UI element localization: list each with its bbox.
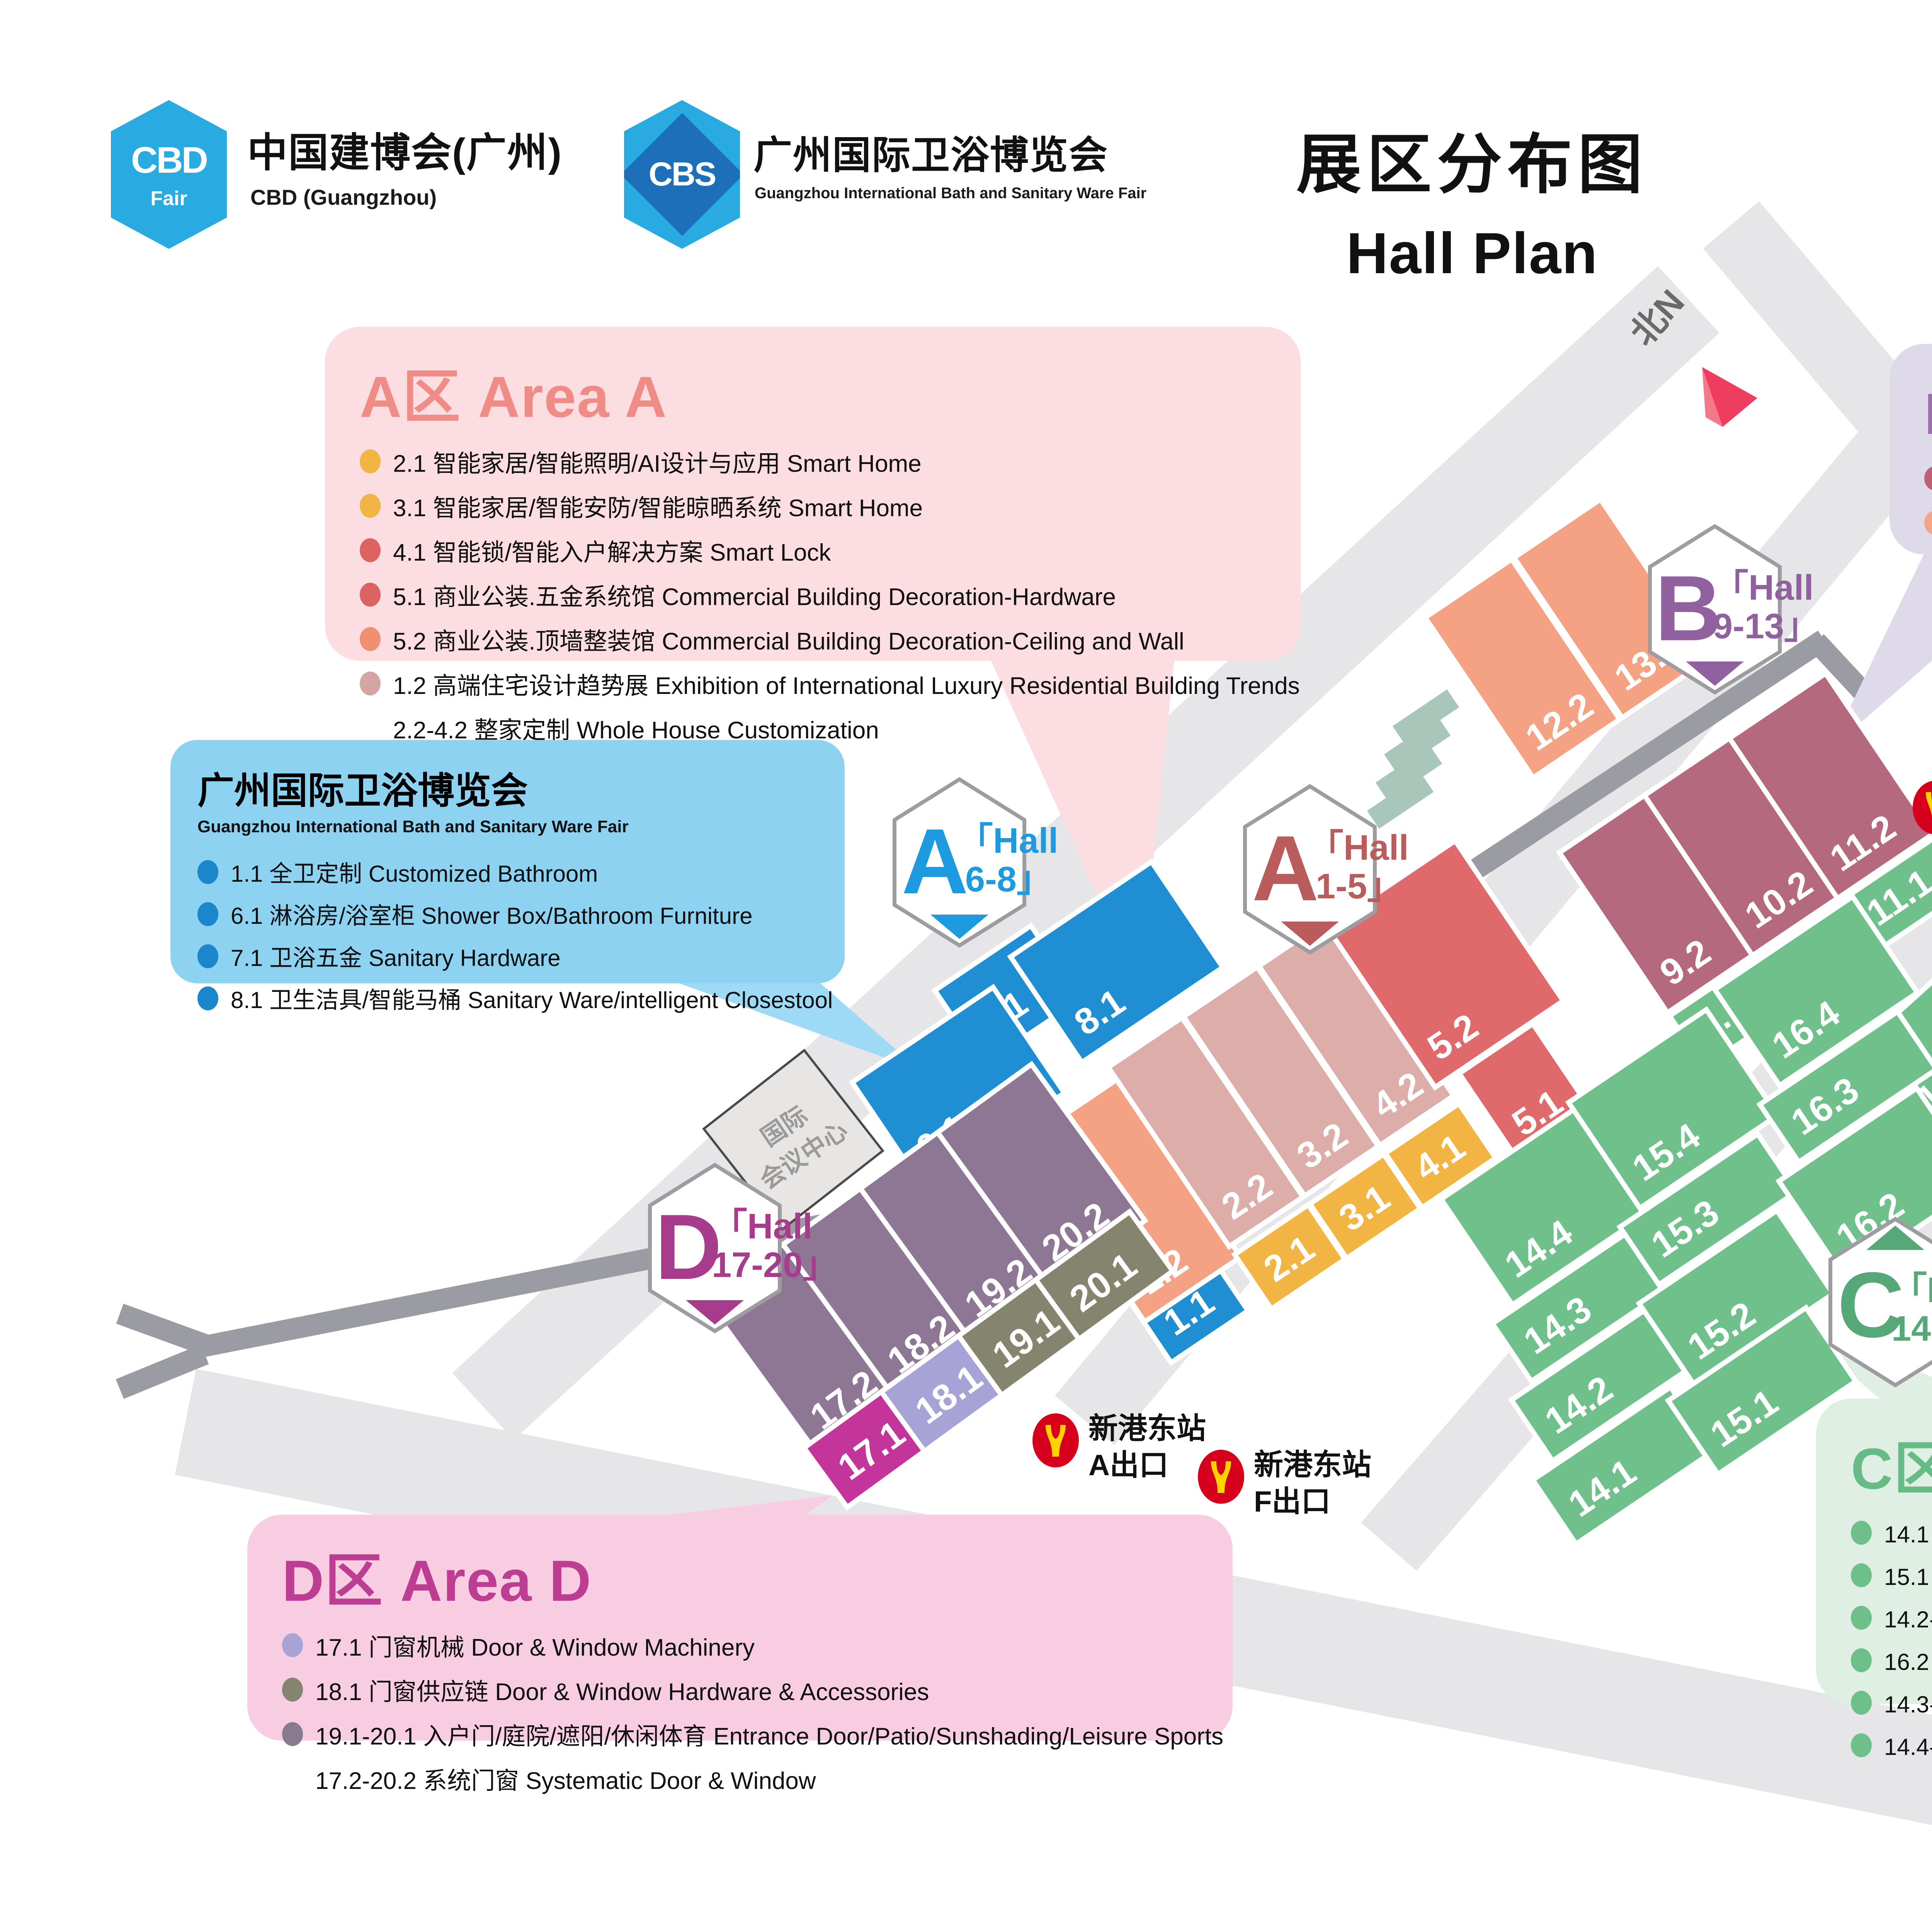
legend-item: 5.1 商业公装.五金系统馆 Commercial Building Decor…	[360, 577, 1266, 612]
legend-item: 3.1 智能家居/智能安防/智能晾晒系统 Smart Home	[360, 488, 1266, 523]
legend-dot	[1851, 1606, 1872, 1630]
area-d-title-cn: D区	[282, 1548, 383, 1613]
legend-item: 12.2-13.2 涂料软装馆 Coating & Furnishing	[1924, 550, 1932, 585]
cbs-title: 广州国际卫浴博览会	[753, 124, 1108, 180]
cbd-logo-sub: Fair	[150, 187, 187, 210]
legend-dot	[360, 627, 381, 651]
legend-item: 14.1 定制五金 Furniture Hardware	[1851, 1516, 1932, 1549]
legend-item: 7.1 卫浴五金 Sanitary Hardware	[197, 939, 818, 973]
hex-line1: 「Hall	[1891, 1270, 1932, 1310]
hex-letter: B	[1655, 556, 1722, 660]
station-exit: F出口	[1254, 1485, 1330, 1518]
station-xingangdong-f: 新港东站 F出口	[1198, 1449, 1371, 1518]
legend-dot	[197, 986, 218, 1010]
legend-item: 8.1 卫生洁具/智能马桶 Sanitary Ware/intelligent …	[197, 981, 818, 1015]
hall-plan-poster: 国际 会议中心 7.1 8.1 6.1 1.1 1.2 2.2 3.2 4.2 …	[0, 0, 1932, 1923]
legend-area-a: A区 Area A 2.1 智能家居/智能照明/AI设计与应用 Smart Ho…	[325, 327, 1301, 661]
cbd-title: 中国建博会(广州)	[247, 120, 562, 178]
legend-item-label: 16.2 材艺·国际馆 International Hall -Hardware…	[1884, 1643, 1932, 1677]
legend-dot	[1851, 1691, 1872, 1715]
cbs-logo: CBS	[624, 100, 740, 249]
legend-item: 14.4-15.4 材料/五金 Material & Hardware	[1851, 1728, 1932, 1762]
walkway-fork	[120, 1354, 205, 1389]
legend-item: 1.1 全卫定制 Customized Bathroom	[197, 855, 818, 889]
legend-area-d: D区 Area D 17.1 门窗机械 Door & Window Machin…	[247, 1515, 1233, 1741]
legend-item: 4.1 智能锁/智能入户解决方案 Smart Lock	[360, 533, 1266, 568]
legend-dot	[360, 494, 381, 518]
page-title-en: Hall Plan	[1264, 220, 1681, 287]
legend-item: 18.1 门窗供应链 Door & Window Hardware & Acce…	[282, 1672, 1198, 1707]
hex-line2: 17-20」	[712, 1245, 838, 1285]
legend-item: 2.1 智能家居/智能照明/AI设计与应用 Smart Home	[360, 444, 1266, 479]
legend-item: 19.1-20.1 入户门/庭院/遮阳/休闲体育 Entrance Door/P…	[282, 1717, 1198, 1751]
area-d-title: D区 Area D	[282, 1534, 1198, 1618]
hex-line1: 「Hall	[957, 821, 1058, 860]
legend-item-label: 14.3-16.3 家居材料 Interior Decorative Mater…	[1884, 1686, 1932, 1719]
legend-item-label: 14.4-15.4 材料/五金 Material & Hardware	[1884, 1728, 1932, 1762]
legend-item-label: 17.2-20.2 系统门窗 Systematic Door & Window	[315, 1761, 816, 1796]
legend-dot	[282, 1722, 303, 1746]
bath-subtitle: Guangzhou International Bath and Sanitar…	[197, 817, 818, 837]
legend-dot	[360, 583, 381, 607]
legend-dot	[197, 902, 218, 926]
legend-item: 17.1 门窗机械 Door & Window Machinery	[282, 1628, 1198, 1663]
hex-line1: 「Hall	[712, 1207, 813, 1246]
legend-item-label: 7.1 卫浴五金 Sanitary Hardware	[231, 939, 561, 973]
legend-item-label: 6.1 淋浴房/浴室柜 Shower Box/Bathroom Furnitur…	[231, 897, 752, 931]
cbs-logo-abbr: CBS	[649, 155, 716, 194]
cbd-fair-logo: CBD Fair	[111, 100, 227, 249]
legend-item-label: 4.1 智能锁/智能入户解决方案 Smart Lock	[393, 533, 831, 568]
station-name: 新港东站	[1088, 1412, 1206, 1445]
legend-dot	[1851, 1563, 1872, 1587]
legend-item-label: 18.1 门窗供应链 Door & Window Hardware & Acce…	[315, 1672, 929, 1707]
legend-item-label: 17.1 门窗机械 Door & Window Machinery	[315, 1628, 755, 1663]
legend-area-b: B区 Area B 9.1-11.1 智造装备馆 Woodworking Mac…	[1889, 344, 1932, 554]
cbs-logo-inner: CBS	[624, 100, 740, 249]
legend-item: 1.2 高端住宅设计趋势展 Exhibition of Internationa…	[360, 666, 1266, 701]
legend-item: 15.1 建筑装饰五金 Decorative Hardware	[1851, 1558, 1932, 1592]
legend-item-label: 14.2-15.2 定制五金 Furniture Hardware	[1884, 1601, 1932, 1634]
legend-dot	[1851, 1521, 1872, 1545]
bath-title: 广州国际卫浴博览会	[197, 761, 818, 814]
legend-item: 14.3-16.3 家居材料 Interior Decorative Mater…	[1851, 1686, 1932, 1719]
area-a-title-en: Area A	[478, 364, 667, 429]
legend-item-label: 15.1 建筑装饰五金 Decorative Hardware	[1884, 1558, 1932, 1592]
legend-bath-fair: 广州国际卫浴博览会 Guangzhou International Bath a…	[170, 740, 845, 983]
legend-item: 14.2-15.2 定制五金 Furniture Hardware	[1851, 1601, 1932, 1634]
hex-line1: 「Hall	[1713, 568, 1814, 607]
area-c-title-cn: C区	[1851, 1436, 1932, 1501]
page-title-cn: 展区分布图	[1264, 112, 1681, 206]
hex-line2: 9-13」	[1713, 607, 1820, 646]
walkway-fork	[120, 1314, 205, 1345]
legend-item: 17.2-20.2 系统门窗 Systematic Door & Window	[282, 1761, 1198, 1796]
area-b-title-cn: B区	[1924, 381, 1932, 446]
cbd-logo-abbr: CBD	[131, 139, 207, 182]
hex-line2: 14-16」	[1891, 1309, 1932, 1348]
legend-area-c: C区 Area C 14.1 定制五金 Furniture Hardware 1…	[1816, 1399, 1932, 1704]
legend-dot	[360, 538, 381, 562]
cbs-subtitle: Guangzhou International Bath and Sanitar…	[755, 185, 1146, 202]
legend-dot	[197, 860, 218, 884]
station-name: 新港东站	[1254, 1449, 1371, 1481]
legend-dot	[1851, 1648, 1872, 1672]
legend-item-label: 3.1 智能家居/智能安防/智能晾晒系统 Smart Home	[393, 488, 923, 523]
hex-line2: 1-5」	[1316, 867, 1403, 906]
legend-dot	[1924, 555, 1932, 579]
legend-dot	[1924, 466, 1932, 490]
hex-line2: 6-8」	[965, 860, 1052, 899]
legend-dot	[282, 1633, 303, 1657]
area-a-title-cn: A区	[360, 364, 461, 429]
station-xingangdong-a: 新港东站 A出口	[1032, 1412, 1206, 1482]
legend-item-label: 1.1 全卫定制 Customized Bathroom	[231, 855, 598, 889]
legend-item: 9.1-11.1 智造装备馆 Woodworking Machinery	[1924, 461, 1932, 496]
area-c-title: C区 Area C	[1851, 1422, 1932, 1506]
area-b-title: B区 Area B	[1924, 367, 1932, 451]
legend-item-label: 5.1 商业公装.五金系统馆 Commercial Building Decor…	[393, 577, 1116, 612]
station-exit: A出口	[1088, 1449, 1168, 1482]
legend-item: 5.2 商业公装.顶墙整装馆 Commercial Building Decor…	[360, 622, 1266, 656]
legend-item-label: 19.1-20.1 入户门/庭院/遮阳/休闲体育 Entrance Door/P…	[315, 1717, 1223, 1751]
legend-item: 9.2-11.2 设计定制馆 Design Customization	[1924, 505, 1932, 540]
legend-item: 16.2 材艺·国际馆 International Hall -Hardware…	[1851, 1643, 1932, 1677]
legend-dot	[197, 944, 218, 968]
legend-dot	[360, 672, 381, 695]
legend-dot	[282, 1767, 303, 1790]
cbd-subtitle: CBD (Guangzhou)	[250, 185, 437, 210]
legend-dot	[1924, 511, 1932, 535]
hex-line1: 「Hall	[1308, 828, 1409, 867]
legend-item-label: 8.1 卫生洁具/智能马桶 Sanitary Ware/intelligent …	[231, 981, 833, 1015]
legend-item-label: 2.1 智能家居/智能照明/AI设计与应用 Smart Home	[393, 444, 922, 479]
area-d-title-en: Area D	[400, 1548, 592, 1613]
legend-item-label: 14.1 定制五金 Furniture Hardware	[1884, 1516, 1932, 1549]
legend-dot	[1851, 1733, 1872, 1757]
legend-dot	[360, 716, 381, 740]
teal-buildings	[1367, 689, 1459, 828]
legend-item-label: 5.2 商业公装.顶墙整装馆 Commercial Building Decor…	[393, 622, 1184, 656]
page-title: 展区分布图 Hall Plan	[1264, 112, 1681, 287]
legend-dot	[360, 449, 381, 473]
legend-item: 6.1 淋浴房/浴室柜 Shower Box/Bathroom Furnitur…	[197, 897, 818, 931]
area-a-title: A区 Area A	[360, 350, 1266, 434]
legend-dot	[282, 1678, 303, 1702]
legend-item-label: 1.2 高端住宅设计趋势展 Exhibition of Internationa…	[393, 666, 1300, 701]
